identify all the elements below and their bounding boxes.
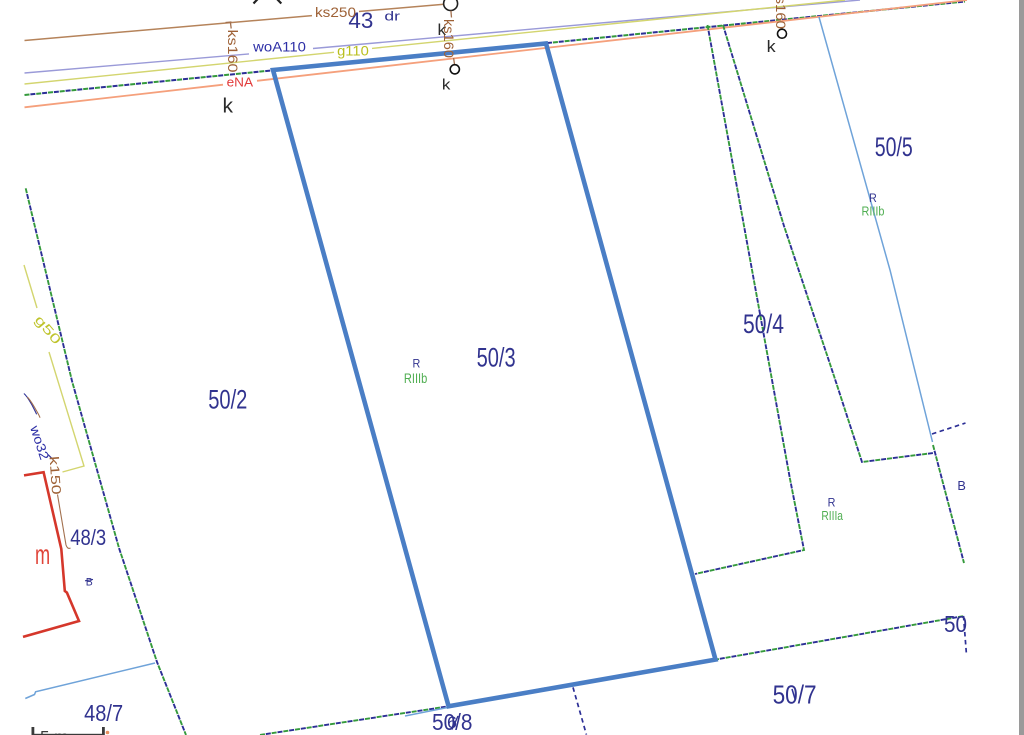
svg-text:ks160: ks160 [225, 30, 240, 73]
svg-text:k: k [223, 95, 235, 117]
svg-text:k: k [767, 37, 777, 56]
svg-text:B: B [86, 577, 93, 589]
svg-text:50/5: 50/5 [875, 132, 913, 162]
svg-text:48/3: 48/3 [70, 525, 106, 550]
svg-text:eNA: eNA [227, 75, 254, 90]
svg-text:RIIIb: RIIIb [862, 204, 885, 219]
svg-text:k: k [442, 77, 451, 94]
svg-text:RIIIb: RIIIb [404, 371, 427, 386]
svg-text:k150: k150 [47, 456, 65, 495]
svg-text:ks250: ks250 [315, 5, 356, 20]
svg-text:5 m: 5 m [40, 728, 68, 735]
svg-text:ks160: ks160 [441, 19, 456, 58]
svg-text:50/3: 50/3 [477, 343, 516, 373]
svg-text:R: R [413, 357, 421, 371]
svg-text:50/2: 50/2 [208, 385, 247, 415]
svg-text:50/4: 50/4 [743, 309, 784, 339]
svg-text:m: m [35, 540, 50, 571]
svg-text:dr: dr [384, 8, 401, 23]
svg-text:RIIIa: RIIIa [821, 508, 843, 523]
svg-text:50: 50 [944, 611, 967, 637]
svg-text:g110: g110 [337, 43, 369, 59]
svg-text:50/7: 50/7 [773, 680, 817, 710]
svg-text:48/7: 48/7 [84, 700, 123, 726]
svg-text:ks160: ks160 [773, 0, 788, 29]
svg-text:woA110: woA110 [252, 39, 306, 55]
svg-text:B: B [957, 478, 966, 493]
svg-text:6: 6 [447, 713, 457, 732]
